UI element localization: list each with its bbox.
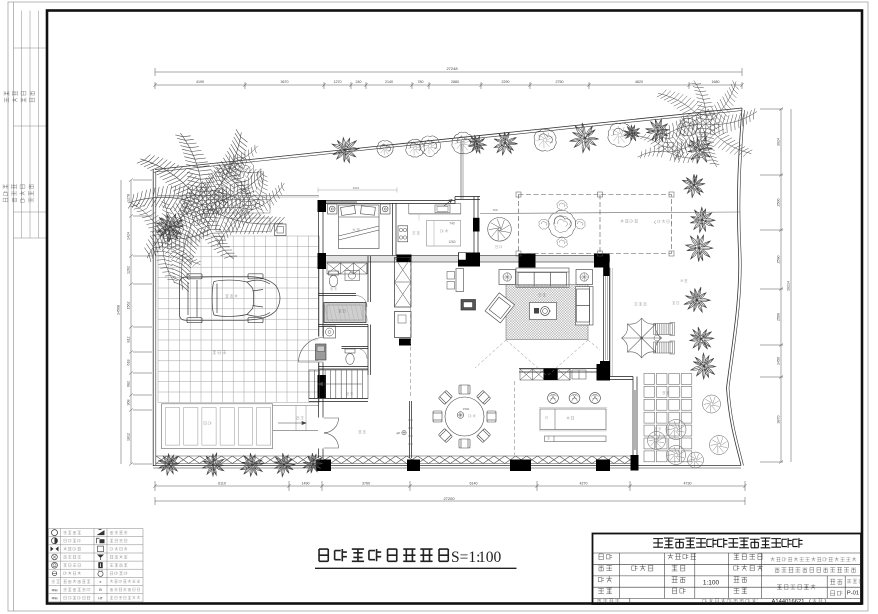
svg-text:100: 100: [478, 549, 502, 566]
svg-text:2290: 2290: [502, 80, 510, 84]
svg-text:ΦH: ΦH: [51, 587, 57, 592]
svg-text:B: B: [99, 588, 102, 592]
svg-text:812: 812: [127, 337, 131, 343]
svg-text:P-01: P-01: [847, 591, 859, 597]
svg-text:2880: 2880: [451, 80, 459, 84]
svg-text:φ8: φ8: [396, 431, 400, 435]
svg-text:4620: 4620: [635, 80, 643, 84]
svg-text:14508: 14508: [117, 305, 121, 315]
svg-text:682: 682: [127, 381, 131, 387]
svg-text:4730: 4730: [684, 482, 692, 486]
svg-text:1260: 1260: [448, 240, 455, 244]
svg-text:3024: 3024: [777, 138, 781, 146]
svg-text:2500: 2500: [777, 199, 781, 207]
svg-text:3760: 3760: [362, 482, 370, 486]
svg-text:2566: 2566: [777, 313, 781, 321]
svg-text:740: 740: [449, 222, 455, 226]
svg-text:618: 618: [127, 360, 131, 366]
svg-text:1278: 1278: [127, 194, 131, 202]
svg-text:6110: 6110: [218, 482, 226, 486]
svg-text:6140: 6140: [470, 482, 478, 486]
svg-text:1562: 1562: [127, 302, 131, 310]
svg-text:4190: 4190: [196, 80, 204, 84]
svg-text:780: 780: [418, 80, 424, 84]
svg-text:27248: 27248: [446, 66, 458, 71]
svg-text:1270: 1270: [334, 80, 342, 84]
svg-text:A144016621: A144016621: [772, 599, 805, 605]
svg-text:368: 368: [127, 400, 131, 406]
svg-text:16214: 16214: [787, 281, 791, 291]
svg-text:4270: 4270: [580, 482, 588, 486]
svg-text:ΦH: ΦH: [51, 595, 57, 600]
svg-text:S=1:: S=1:: [451, 549, 480, 566]
svg-text:1450: 1450: [777, 357, 781, 365]
svg-text:1812: 1812: [127, 433, 131, 441]
svg-text:3670: 3670: [281, 80, 289, 84]
svg-text:1490: 1490: [302, 482, 310, 486]
svg-text:3870: 3870: [777, 416, 781, 424]
svg-text:1680: 1680: [712, 80, 720, 84]
svg-text:2750: 2750: [556, 80, 564, 84]
svg-text:3924: 3924: [353, 186, 360, 190]
svg-text:1262: 1262: [127, 266, 131, 274]
svg-text:2590: 2590: [777, 256, 781, 264]
svg-text:1424: 1424: [127, 232, 131, 240]
svg-text:27200: 27200: [443, 496, 455, 501]
svg-text:1:100: 1:100: [703, 580, 720, 587]
svg-text:1500: 1500: [463, 407, 470, 411]
svg-text:x: x: [100, 580, 102, 584]
svg-text:700: 700: [492, 208, 497, 212]
svg-text:2140: 2140: [385, 80, 393, 84]
svg-text:240: 240: [356, 80, 362, 84]
svg-text:HT: HT: [98, 596, 103, 600]
